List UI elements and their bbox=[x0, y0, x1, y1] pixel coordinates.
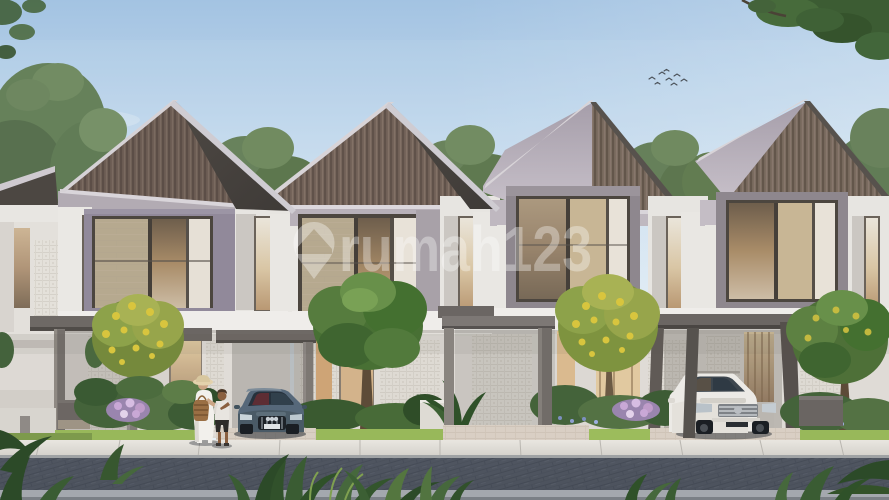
svg-text:rumah123: rumah123 bbox=[339, 213, 592, 285]
